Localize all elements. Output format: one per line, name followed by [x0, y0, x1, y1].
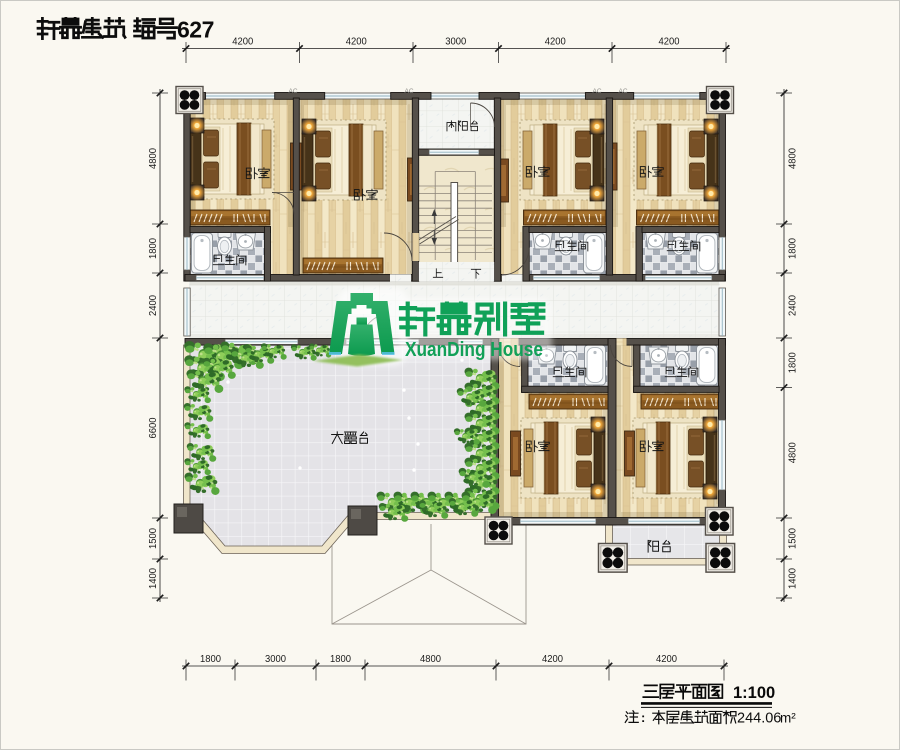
svg-text:1800: 1800	[788, 238, 799, 259]
svg-text:AC: AC	[618, 88, 627, 95]
svg-text:1:100: 1:100	[733, 684, 775, 702]
svg-text:1500: 1500	[148, 528, 159, 549]
svg-text:4200: 4200	[656, 654, 677, 665]
svg-text:AC: AC	[288, 88, 297, 95]
svg-text:1800: 1800	[330, 654, 351, 665]
svg-text:1400: 1400	[788, 568, 799, 589]
svg-text:1800: 1800	[788, 352, 799, 373]
svg-text:4200: 4200	[542, 654, 563, 665]
svg-text:627: 627	[177, 17, 214, 43]
svg-text:1400: 1400	[148, 568, 159, 589]
svg-text:4800: 4800	[148, 148, 159, 169]
svg-text:4200: 4200	[659, 36, 680, 47]
svg-text:1800: 1800	[148, 238, 159, 259]
svg-text:4200: 4200	[545, 36, 566, 47]
svg-text:4800: 4800	[788, 148, 799, 169]
svg-text:1500: 1500	[788, 528, 799, 549]
svg-text::: :	[641, 710, 645, 725]
svg-text:AC: AC	[592, 88, 601, 95]
svg-text:3000: 3000	[265, 654, 286, 665]
svg-text:6600: 6600	[148, 417, 159, 438]
svg-text:4800: 4800	[788, 442, 799, 463]
svg-text:4800: 4800	[420, 654, 441, 665]
svg-text:4200: 4200	[346, 36, 367, 47]
svg-text:4200: 4200	[232, 36, 253, 47]
svg-text:2400: 2400	[788, 295, 799, 316]
svg-text:AC: AC	[404, 88, 413, 95]
svg-text:1800: 1800	[200, 654, 221, 665]
svg-text:244.06: 244.06	[737, 711, 781, 727]
svg-text:2400: 2400	[148, 295, 159, 316]
svg-text:XuanDing House: XuanDing House	[405, 339, 543, 361]
svg-text:3000: 3000	[445, 36, 466, 47]
svg-text:m²: m²	[780, 711, 796, 726]
